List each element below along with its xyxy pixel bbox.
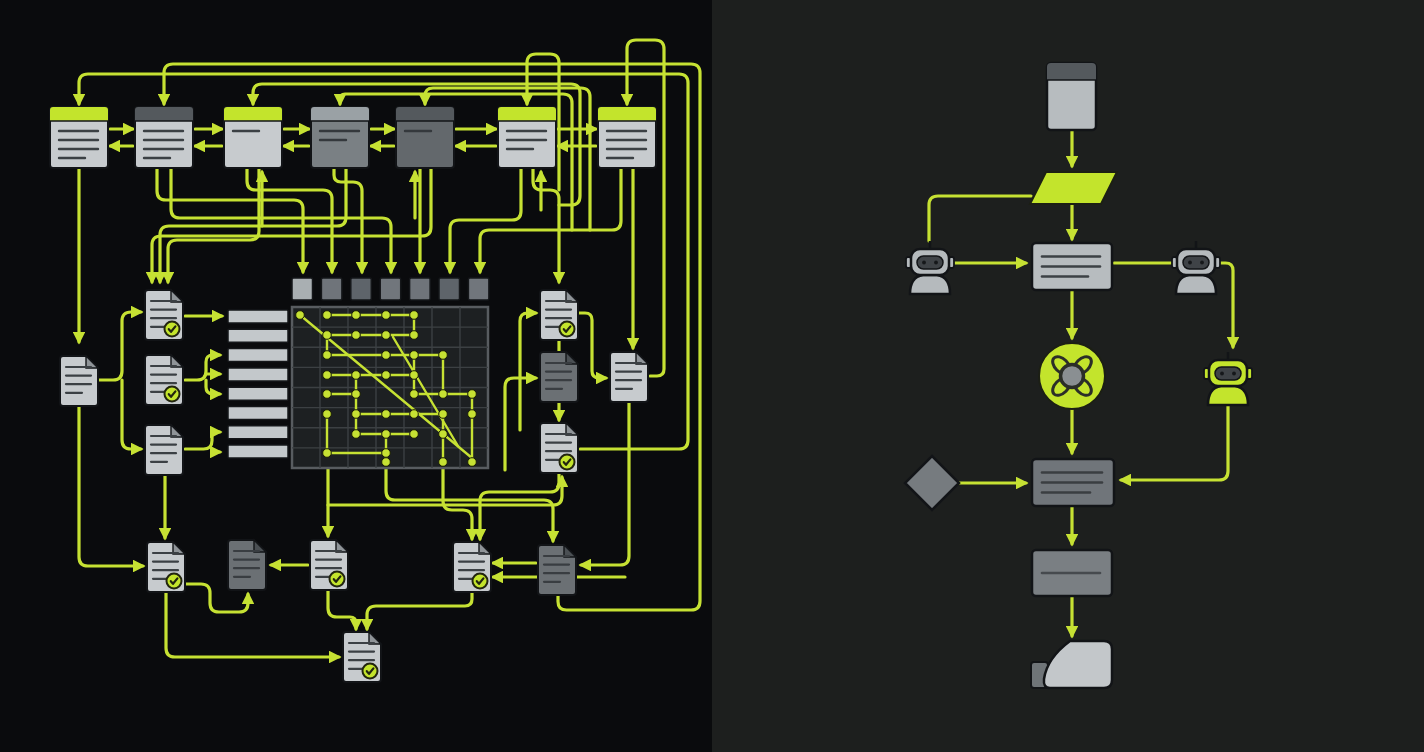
matrix-node-dot [352,430,361,439]
matrix-node-dot [296,311,305,320]
check-badge-icon [165,387,180,402]
matrix-column-header [351,278,372,300]
matrix-node-dot [410,371,419,380]
process-step-2 [1032,459,1114,506]
list-bar [228,387,288,400]
validated-document [310,540,348,590]
check-badge-icon [167,574,182,589]
validated-document [540,290,578,340]
archived-document [540,352,578,402]
matrix-column-header [321,278,342,300]
matrix-node-dot [410,410,419,419]
orchestrator-hub [1039,343,1105,409]
matrix-node-dot [323,410,332,419]
archived-document [228,540,266,590]
check-badge-icon [363,664,378,679]
list-bar [228,349,288,362]
list-bar [228,426,288,439]
check-badge-icon [560,322,575,337]
archived-document [538,545,576,595]
check-badge-icon [165,322,180,337]
process-step-1 [1032,243,1112,290]
matrix-node-dot [352,371,361,380]
matrix-node-dot [410,430,419,439]
matrix-node-dot [382,430,391,439]
validated-document [147,542,185,592]
matrix-column-header [292,278,313,300]
workflow-card [396,107,454,168]
matrix-node-dot [382,458,391,467]
matrix-node-dot [439,390,448,399]
dependency-matrix [292,278,489,468]
draft-document [145,425,183,475]
check-badge-icon [473,574,488,589]
validated-document [540,423,578,473]
matrix-column-header [410,278,431,300]
source-document [60,356,98,406]
matrix-node-dot [323,331,332,340]
output-document [610,352,648,402]
list-bar [228,310,288,323]
final-document [343,632,381,682]
matrix-node-dot [410,390,419,399]
matrix-node-dot [439,410,448,419]
matrix-node-dot [382,331,391,340]
matrix-node-dot [410,351,419,360]
matrix-node-dot [382,410,391,419]
matrix-node-dot [352,331,361,340]
matrix-node-dot [382,311,391,320]
matrix-node-dot [410,311,419,320]
check-badge-icon [330,572,345,587]
matrix-node-dot [468,410,477,419]
workflow-card [311,107,369,168]
validated-document [453,542,491,592]
input-parallelogram [1030,172,1117,204]
matrix-column-header [439,278,460,300]
matrix-node-dot [352,311,361,320]
workflow-card [50,107,108,168]
data-source-card [1047,63,1096,130]
validated-document [145,290,183,340]
workflow-card [498,107,556,168]
matrix-node-dot [439,458,448,467]
matrix-node-dot [382,351,391,360]
matrix-node-dot [468,390,477,399]
workflow-card [598,107,656,168]
matrix-node-dot [468,458,477,467]
list-bar [228,368,288,381]
list-bar [228,329,288,342]
matrix-column-header [380,278,401,300]
validated-document [145,355,183,405]
diagram-stage [0,0,1424,752]
matrix-node-dot [439,430,448,439]
workflow-card [224,107,282,168]
workflow-diagram-canvas [0,0,1424,752]
matrix-node-dot [323,390,332,399]
matrix-node-dot [323,371,332,380]
matrix-node-dot [323,449,332,458]
list-bar [228,445,288,458]
list-bar [228,407,288,420]
matrix-node-dot [352,390,361,399]
process-step-3 [1032,550,1112,596]
matrix-column-header [468,278,489,300]
matrix-node-dot [382,371,391,380]
matrix-node-dot [323,351,332,360]
check-badge-icon [560,455,575,470]
matrix-node-dot [439,351,448,360]
workflow-card [135,107,193,168]
matrix-node-dot [382,449,391,458]
matrix-node-dot [410,331,419,340]
matrix-node-dot [352,410,361,419]
matrix-node-dot [323,311,332,320]
